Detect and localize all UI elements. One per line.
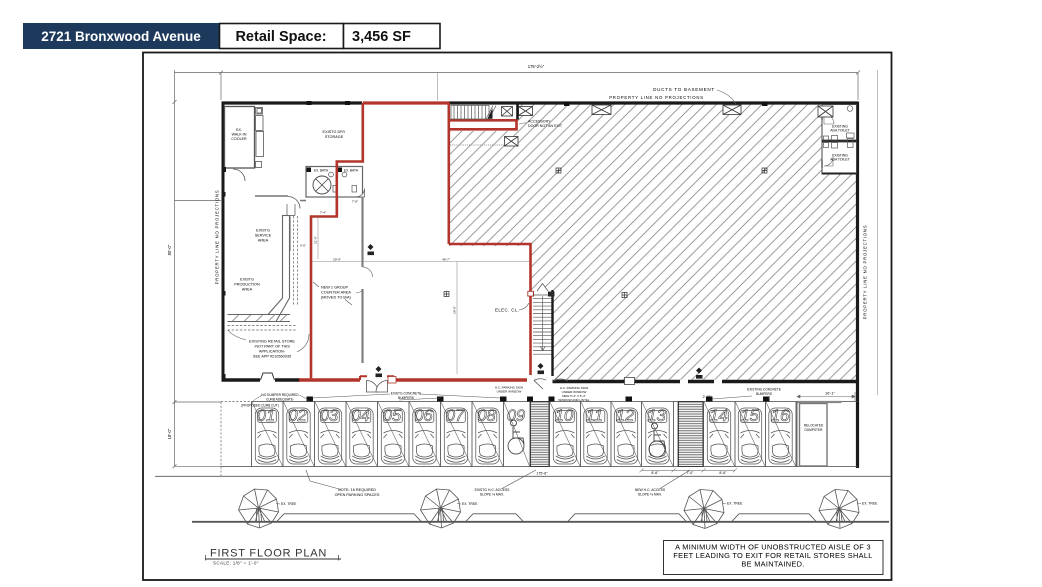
svg-text:NEW H.C. ACCESS: NEW H.C. ACCESS	[635, 488, 666, 492]
svg-text:3'-6": 3'-6"	[300, 244, 306, 248]
svg-text:FIRST FLOOR PLAN: FIRST FLOOR PLAN	[210, 548, 327, 560]
svg-text:29'-9": 29'-9"	[333, 258, 341, 262]
svg-text:2'-10": 2'-10"	[703, 395, 712, 399]
svg-text:16: 16	[771, 407, 790, 425]
svg-text:SERVICE: SERVICE	[255, 234, 272, 238]
svg-text:80'-0": 80'-0"	[167, 244, 172, 255]
svg-text:BUMPERS: BUMPERS	[756, 392, 772, 396]
svg-text:29'-6": 29'-6"	[453, 306, 457, 314]
svg-text:NOTE: 16 REQUIRED: NOTE: 16 REQUIRED	[338, 488, 376, 492]
svg-text:06: 06	[414, 407, 433, 425]
svg-text:EXISTG DRY: EXISTG DRY	[323, 130, 346, 134]
svg-text:COUNTER AREA: COUNTER AREA	[321, 291, 351, 295]
svg-text:EXISTING CONCRETE: EXISTING CONCRETE	[747, 388, 781, 392]
svg-text:02: 02	[288, 407, 306, 425]
svg-text:EXISTG H.C. ACCESS: EXISTG H.C. ACCESS	[475, 488, 511, 492]
svg-text:7'-4": 7'-4"	[320, 211, 326, 215]
svg-text:01: 01	[257, 407, 275, 425]
svg-text:8'-6": 8'-6"	[719, 471, 727, 475]
svg-text:-NO DUMPER REQUIRED-: -NO DUMPER REQUIRED-	[260, 393, 299, 397]
svg-text:EX.: EX.	[236, 128, 242, 132]
svg-text:2721 Bronxwood Avenue: 2721 Bronxwood Avenue	[41, 29, 201, 44]
svg-text:CURB ADEQUATE-: CURB ADEQUATE-	[266, 398, 294, 402]
svg-text:09: 09	[507, 407, 525, 425]
svg-text:APPLICATION-: APPLICATION-	[259, 350, 286, 354]
svg-text:175'-6": 175'-6"	[536, 471, 548, 475]
svg-text:DUCTS TO BASEMENT: DUCTS TO BASEMENT	[653, 87, 715, 92]
svg-text:DUMPSTER: DUMPSTER	[805, 428, 824, 432]
svg-text:SEE APP #210560035: SEE APP #210560035	[253, 355, 291, 359]
svg-text:46'-7": 46'-7"	[442, 258, 450, 262]
svg-text:04: 04	[351, 407, 369, 425]
svg-text:EX. BATH: EX. BATH	[314, 168, 329, 172]
svg-text:AREA: AREA	[242, 288, 253, 292]
svg-text:(MOVED TO B/A): (MOVED TO B/A)	[321, 296, 352, 300]
svg-text:ADA TOILET: ADA TOILET	[830, 158, 849, 162]
svg-text:EXISTING RETAIL STORE: EXISTING RETAIL STORE	[249, 340, 295, 344]
svg-text:175'-2½": 175'-2½"	[528, 64, 545, 69]
svg-text:WINDOW AND LINTEL: WINDOW AND LINTEL	[558, 398, 590, 402]
svg-text:13: 13	[647, 407, 666, 425]
svg-text:SCALE: 1/8" = 1'-0": SCALE: 1/8" = 1'-0"	[213, 561, 259, 566]
svg-text:(PROPOSED CURB CUT): (PROPOSED CURB CUT)	[241, 404, 279, 408]
svg-text:NEW 1 GROUP: NEW 1 GROUP	[321, 286, 348, 290]
svg-text:UNDER WINDOW: UNDER WINDOW	[497, 390, 522, 394]
svg-text:WALK-IN: WALK-IN	[232, 133, 247, 137]
svg-text:8'-6": 8'-6"	[651, 471, 659, 475]
svg-text:RELOCATED: RELOCATED	[804, 424, 824, 428]
svg-text:EX. BATH: EX. BATH	[344, 168, 359, 172]
svg-text:AREA: AREA	[258, 239, 269, 243]
svg-text:PROPERTY LINE NO PROJECTIONS: PROPERTY LINE NO PROJECTIONS	[215, 190, 220, 285]
svg-text:COOLER: COOLER	[231, 137, 247, 141]
svg-text:OPEN PARKING SPACES: OPEN PARKING SPACES	[335, 493, 380, 497]
svg-text:10: 10	[555, 407, 574, 425]
svg-text:BE MAINTAINED.: BE MAINTAINED.	[741, 560, 804, 569]
svg-text:08: 08	[477, 407, 496, 425]
svg-text:03: 03	[320, 407, 339, 425]
svg-text:EX. TREE: EX. TREE	[862, 502, 878, 506]
svg-text:PROPERTY LINE NO PROJECTIONS: PROPERTY LINE NO PROJECTIONS	[609, 95, 704, 100]
svg-text:-NOT PART OF THIS: -NOT PART OF THIS	[254, 345, 290, 349]
svg-text:PRODUCTION: PRODUCTION	[234, 283, 260, 287]
svg-text:EX. TREE: EX. TREE	[462, 502, 478, 506]
svg-text:18'-0": 18'-0"	[167, 428, 172, 439]
svg-text:PROPERTY LINE NO PROJECTIONS: PROPERTY LINE NO PROJECTIONS	[863, 225, 868, 320]
svg-text:SLOPE ⅛ MAX.: SLOPE ⅛ MAX.	[638, 493, 662, 497]
svg-text:EX. TREE: EX. TREE	[281, 502, 297, 506]
svg-text:ACCESSORY: ACCESSORY	[528, 120, 551, 124]
svg-text:ADA TOILET: ADA TOILET	[830, 129, 849, 133]
svg-text:Retail Space:: Retail Space:	[235, 29, 326, 45]
svg-text:SLOPE ⅛ MAX.: SLOPE ⅛ MAX.	[480, 493, 504, 497]
svg-text:21'-0": 21'-0"	[314, 236, 318, 244]
svg-text:16'-1": 16'-1"	[825, 392, 835, 396]
svg-text:05: 05	[383, 407, 402, 425]
svg-text:STORAGE: STORAGE	[325, 135, 344, 139]
svg-text:15: 15	[740, 407, 759, 425]
svg-text:14: 14	[709, 407, 727, 425]
svg-text:07: 07	[446, 407, 465, 425]
svg-text:EXISTG CONCRETE: EXISTG CONCRETE	[391, 392, 421, 396]
svg-text:EX. TREE: EX. TREE	[727, 502, 743, 506]
svg-text:11: 11	[586, 407, 603, 425]
svg-text:EXISTG: EXISTG	[240, 278, 254, 282]
svg-text:EXISTG: EXISTG	[256, 229, 270, 233]
svg-text:7'-8": 7'-8"	[352, 200, 358, 204]
svg-text:ELEC. CL.: ELEC. CL.	[495, 308, 519, 313]
svg-text:DOOR NOT AN EXIT: DOOR NOT AN EXIT	[528, 124, 563, 128]
svg-text:3,456 SF: 3,456 SF	[352, 29, 411, 45]
svg-text:12: 12	[616, 407, 634, 425]
